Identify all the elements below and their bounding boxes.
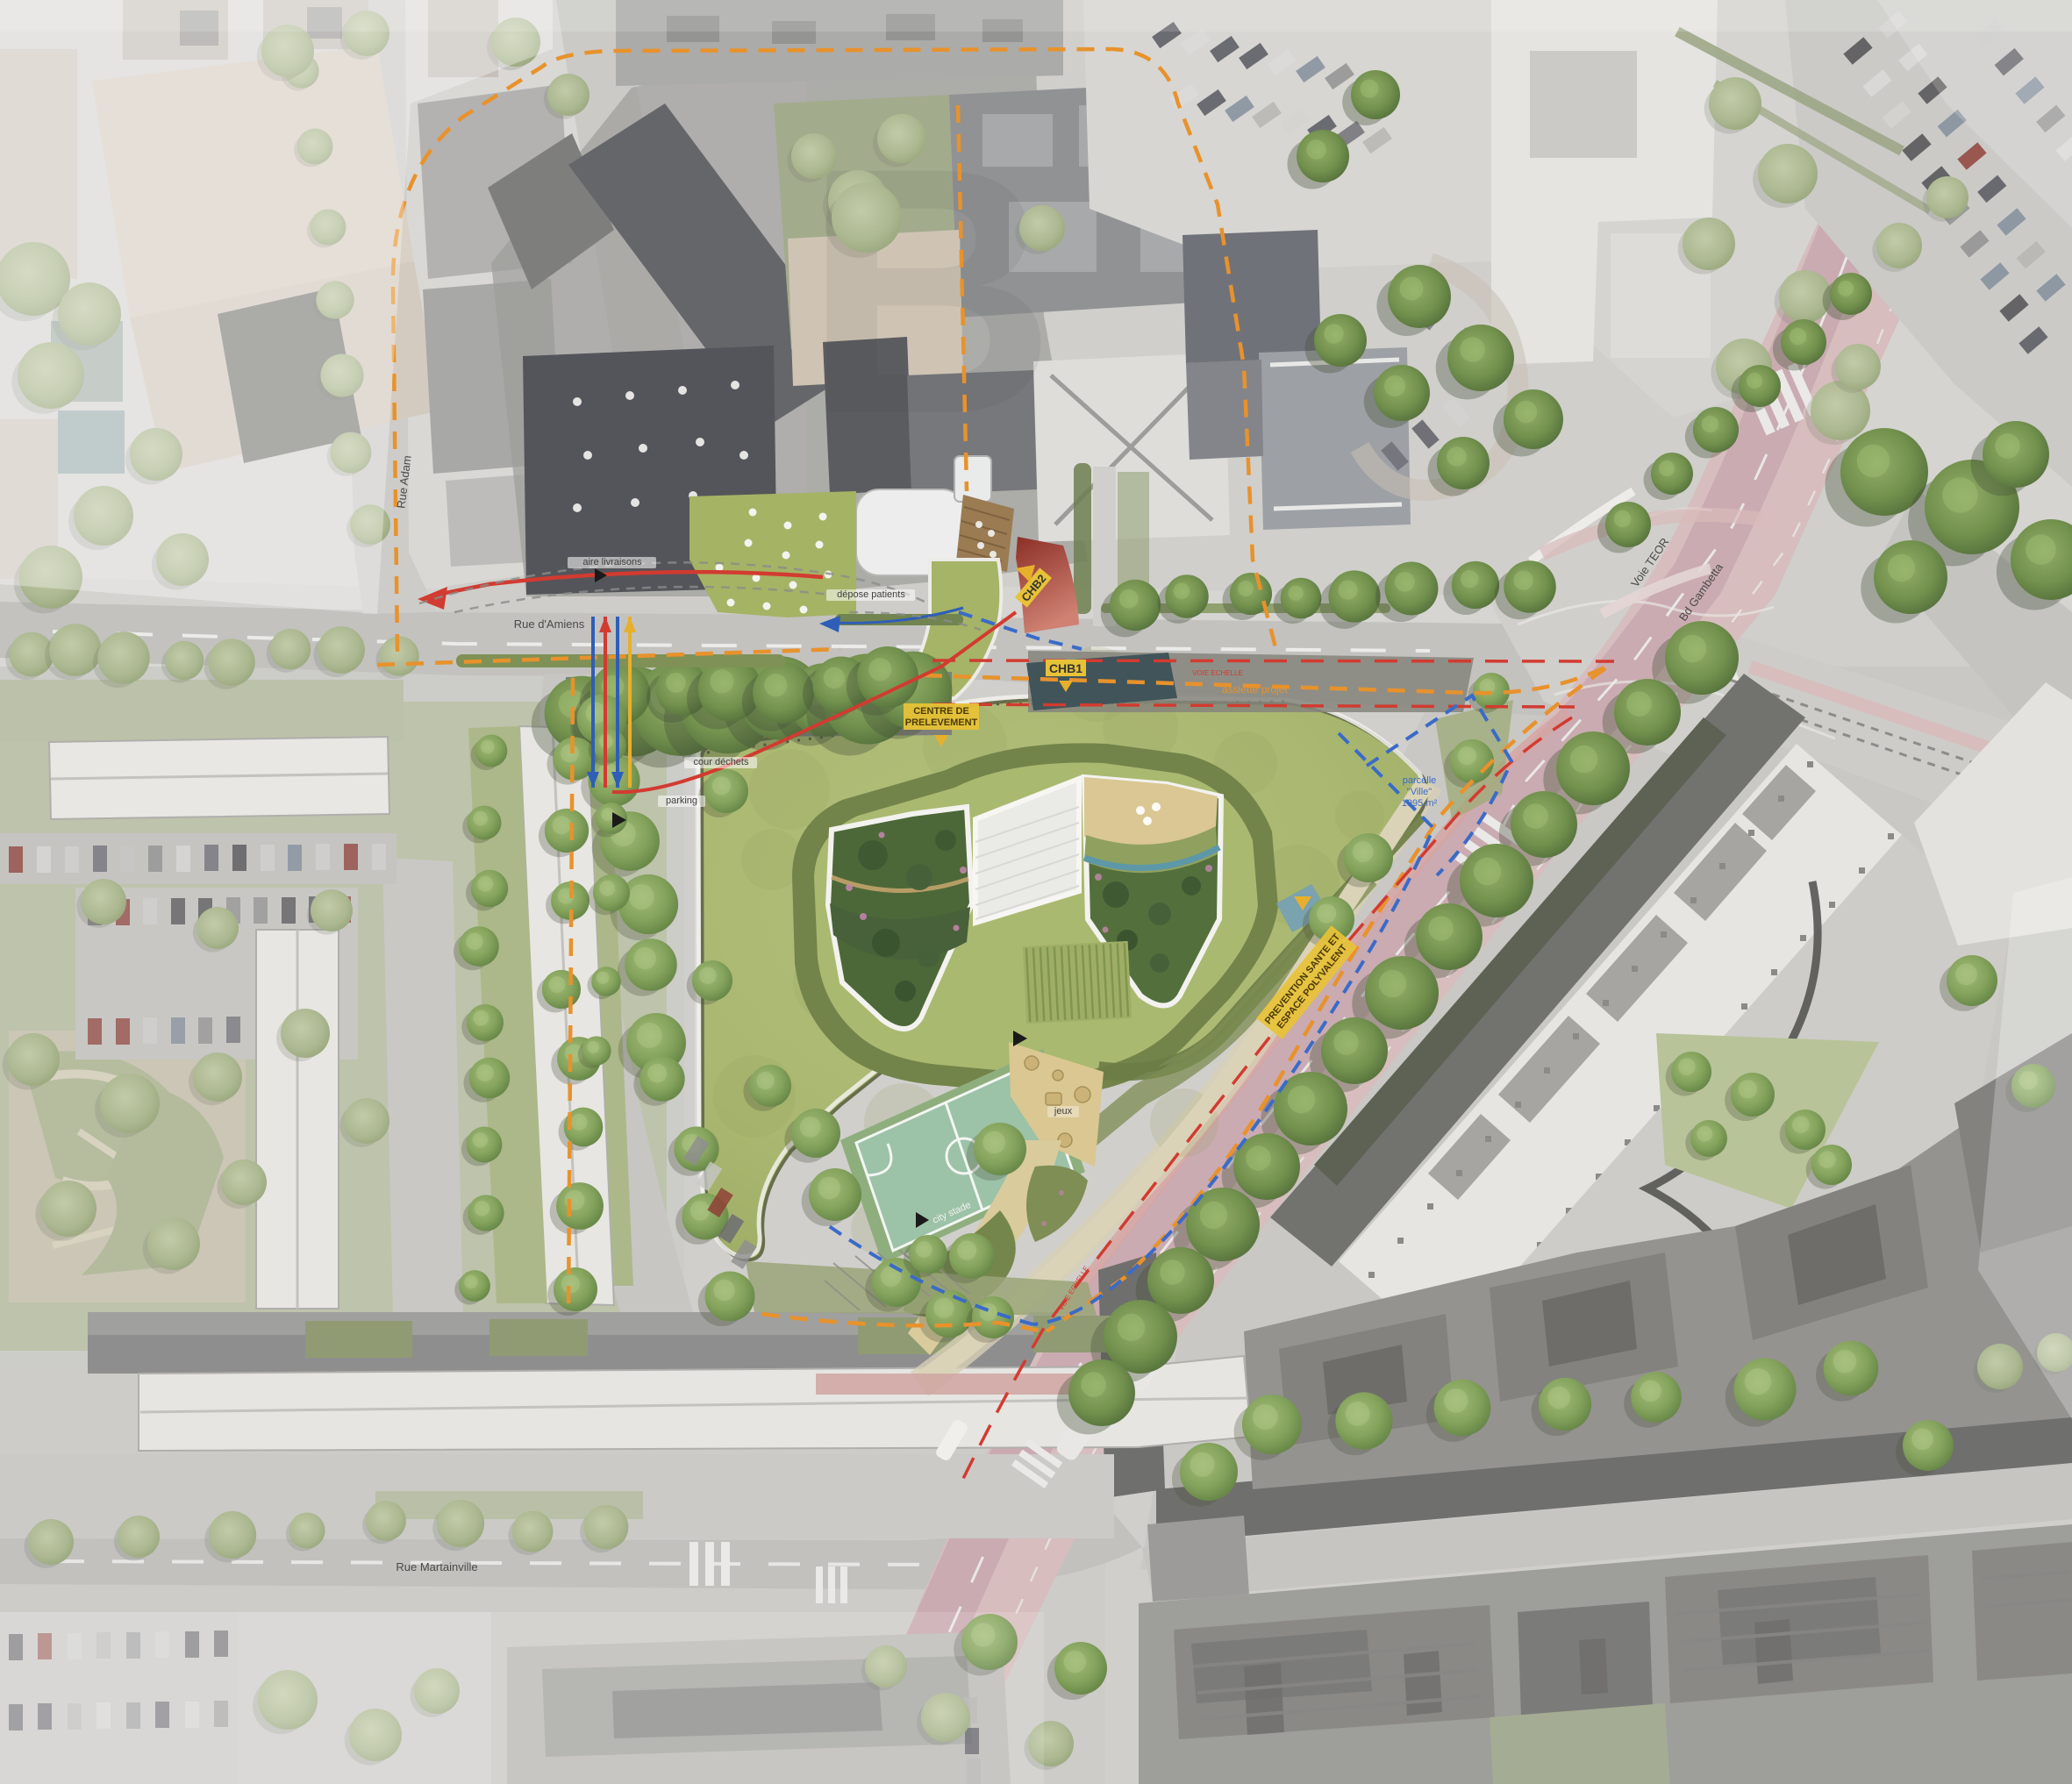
svg-text:cour déchets: cour déchets: [694, 757, 749, 767]
svg-text:parking: parking: [666, 796, 697, 806]
svg-text:Rue d'Amiens: Rue d'Amiens: [514, 617, 585, 631]
svg-text:CENTRE DE: CENTRE DE: [913, 706, 969, 717]
svg-text:VOIE ECHELLE: VOIE ECHELLE: [1192, 669, 1243, 677]
svg-text:CHB1: CHB1: [1049, 661, 1082, 675]
svg-text:assiette projet: assiette projet: [1222, 683, 1288, 696]
svg-text:jeux: jeux: [1054, 1106, 1073, 1117]
svg-text:"Ville": "Ville": [1407, 787, 1432, 797]
svg-text:B: B: [804, 95, 1057, 487]
svg-text:Rue Martainville: Rue Martainville: [396, 1560, 477, 1573]
svg-text:parcelle: parcelle: [1403, 775, 1437, 786]
svg-text:PRELEVEMENT: PRELEVEMENT: [905, 717, 978, 728]
svg-text:1995 m²: 1995 m²: [1402, 798, 1438, 809]
svg-text:aire livraisons: aire livraisons: [582, 557, 642, 567]
svg-text:dépose patients: dépose patients: [837, 589, 905, 600]
